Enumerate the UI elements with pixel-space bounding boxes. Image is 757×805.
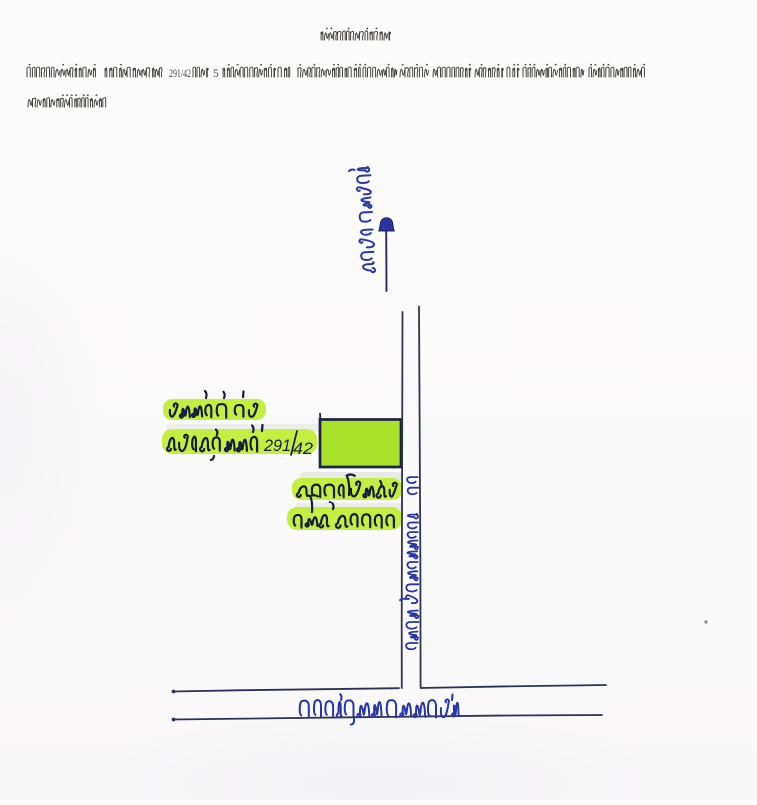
svg-text:291: 291: [263, 436, 291, 455]
svg-text:5: 5: [213, 68, 219, 80]
svg-text:42: 42: [293, 439, 314, 458]
svg-text:291/42: 291/42: [169, 68, 191, 80]
